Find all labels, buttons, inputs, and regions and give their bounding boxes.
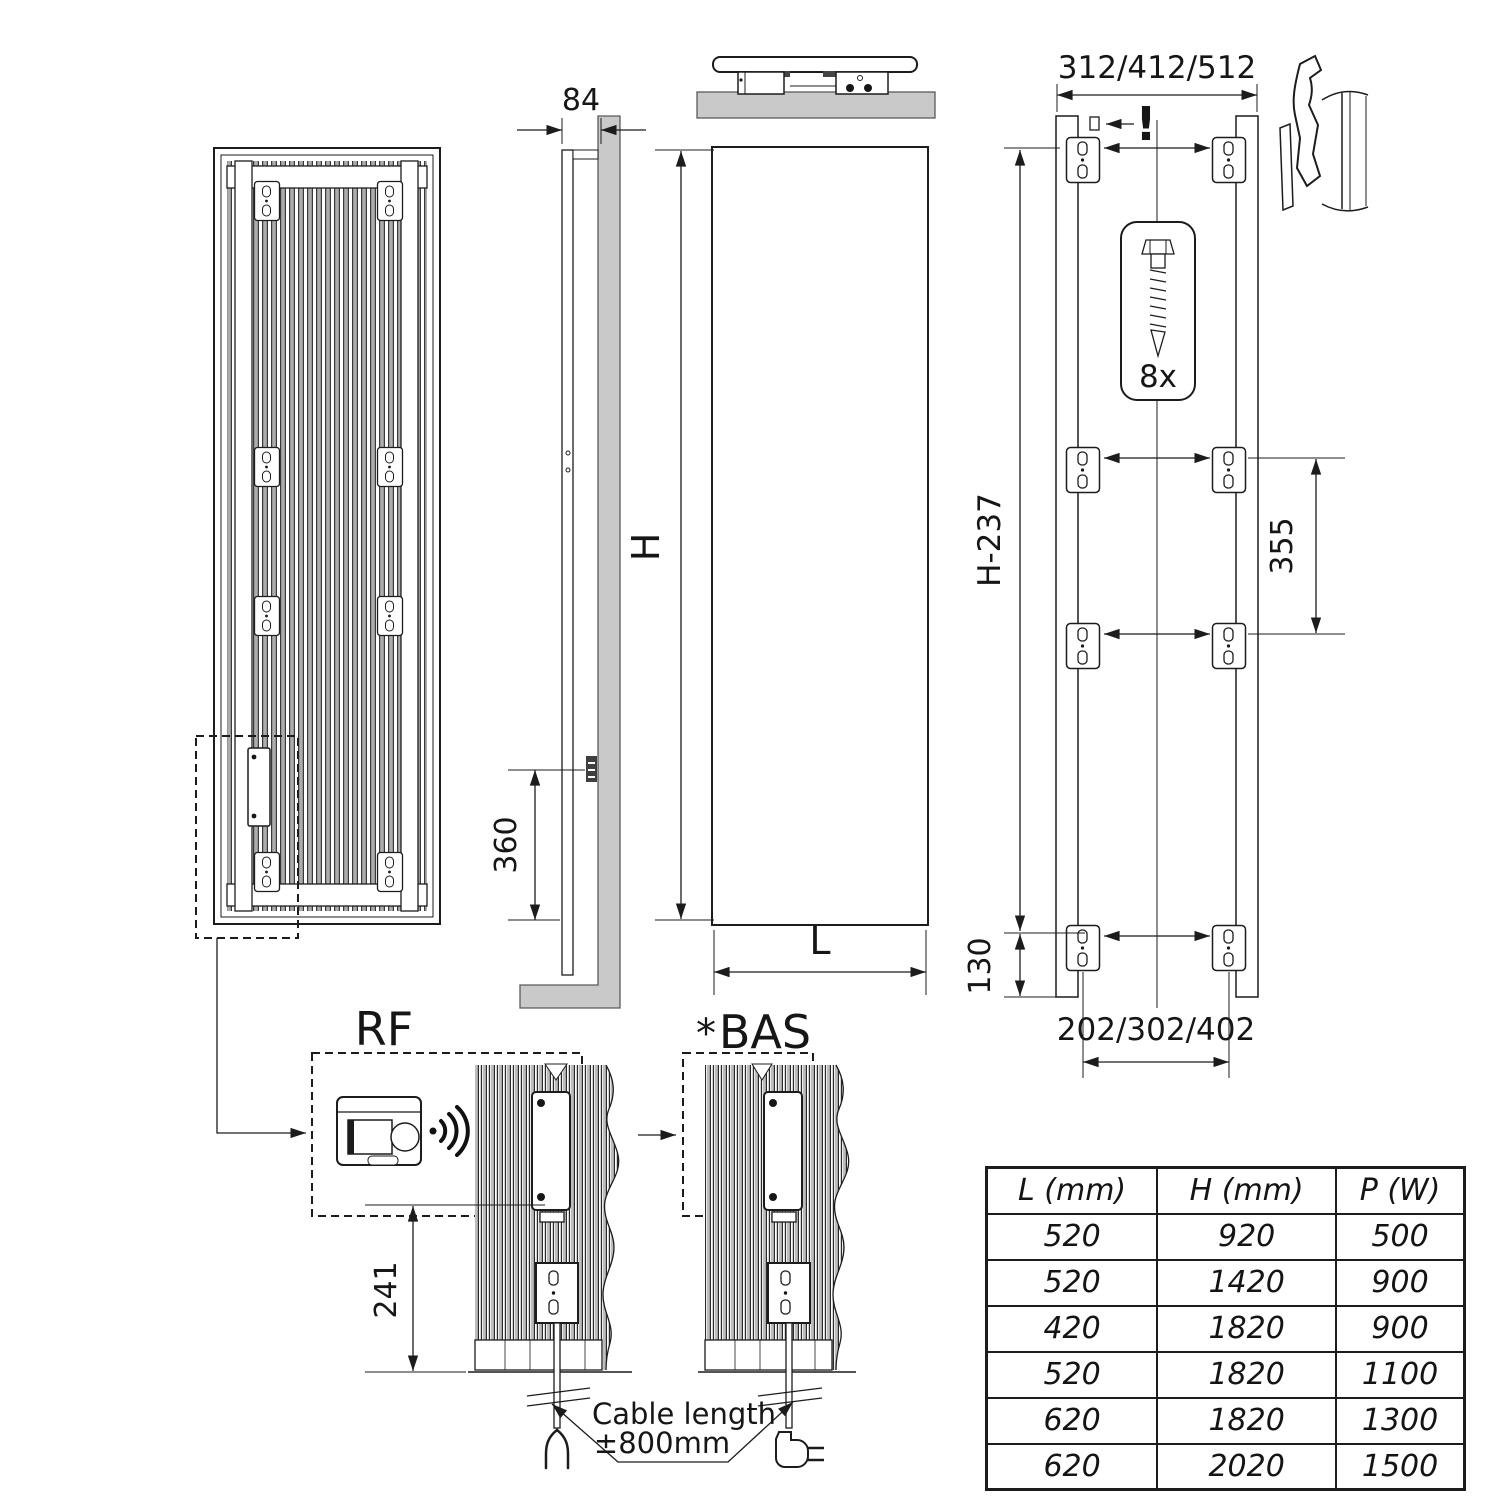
radiator-side-panel <box>562 150 573 975</box>
callout-leader-line <box>217 938 306 1133</box>
wall-bracket-side-detail <box>1280 56 1368 211</box>
mounting-bracket <box>1067 138 1100 183</box>
col-header-P: P (W) <box>1336 1168 1464 1214</box>
power-cable <box>554 1323 560 1428</box>
heater-control-module <box>532 1092 570 1210</box>
cell-L: 620 <box>987 1444 1158 1490</box>
cable-note-line2: ±800mm <box>594 1426 730 1460</box>
rail-right <box>1236 116 1258 997</box>
top-bracket-side <box>573 150 598 159</box>
cell-L: 520 <box>987 1260 1158 1306</box>
warning-mark: ! <box>1136 97 1157 151</box>
col-header-L: L (mm) <box>987 1168 1158 1214</box>
spec-row: 520 920 500 <box>987 1214 1465 1260</box>
module-screw <box>537 1099 545 1107</box>
cell-P: 900 <box>1336 1260 1464 1306</box>
dim-label-360: 360 <box>489 816 524 873</box>
bare-wire-end <box>546 1430 568 1468</box>
cell-H: 1820 <box>1157 1306 1336 1352</box>
col-header-H: H (mm) <box>1157 1168 1336 1214</box>
dim-label-H: H <box>624 533 668 562</box>
power-cable <box>786 1323 792 1428</box>
cell-H: 1820 <box>1157 1352 1336 1398</box>
front-view: H L <box>624 57 935 995</box>
alignment-tab <box>1090 117 1099 130</box>
cell-P: 1100 <box>1336 1352 1464 1398</box>
dim-label-H237: H-237 <box>972 493 1008 587</box>
module-screw <box>252 755 257 760</box>
mounting-bracket <box>378 182 403 221</box>
dim-130: 130 <box>963 934 1062 997</box>
spec-row: 520 1820 1100 <box>987 1352 1465 1398</box>
spec-row: 420 1820 900 <box>987 1306 1465 1352</box>
dim-depth-84: 84 <box>517 83 646 144</box>
cell-P: 900 <box>1336 1306 1464 1352</box>
spec-table-header-row: L (mm) H (mm) P (W) <box>987 1168 1465 1214</box>
rf-label: RF <box>355 1002 413 1056</box>
control-module <box>248 748 270 826</box>
plug-end <box>776 1432 824 1467</box>
rail-left <box>1056 116 1078 997</box>
spec-row: 520 1420 900 <box>987 1260 1465 1306</box>
mounting-bracket <box>255 853 280 892</box>
spec-row: 620 2020 1500 <box>987 1444 1465 1490</box>
cell-H: 1820 <box>1157 1398 1336 1444</box>
cable-length-note: Cable length ±800mm <box>552 1397 793 1462</box>
spec-table: L (mm) H (mm) P (W) 520 920 500 520 1420… <box>985 1166 1466 1491</box>
cell-H: 1420 <box>1157 1260 1336 1306</box>
heater-control-module <box>764 1092 802 1210</box>
dim-height-H: H <box>624 150 714 920</box>
mounting-bracket <box>1213 138 1246 183</box>
spec-row: 620 1820 1300 <box>987 1398 1465 1444</box>
bracket-top-view <box>836 72 888 94</box>
dim-label-top-width: 312/412/512 <box>1058 50 1256 86</box>
screw-badge: 8x <box>1121 222 1195 400</box>
wall-plate <box>1280 124 1293 210</box>
thermostat-display <box>348 1120 392 1154</box>
side-view: 84 360 <box>489 83 646 1008</box>
mounting-bracket <box>1213 926 1246 971</box>
bas-label: BAS <box>719 1005 811 1059</box>
cell-L: 520 <box>987 1352 1158 1398</box>
panel-outline <box>712 147 928 925</box>
screw-count-label: 8x <box>1139 359 1177 395</box>
cell-H: 2020 <box>1157 1444 1336 1490</box>
wall-bar <box>697 92 935 118</box>
dim-label-L: L <box>809 919 830 963</box>
remote-thermostat <box>337 1097 421 1165</box>
mounting-bracket <box>1067 624 1100 669</box>
dim-bottom-width: 202/302/402 <box>1057 972 1255 1078</box>
dim-label-241: 241 <box>369 1261 404 1318</box>
panel-top-profile <box>713 57 917 72</box>
mounting-bracket <box>1213 448 1246 493</box>
dim-width-L: L <box>714 919 926 995</box>
module-screw <box>769 1099 777 1107</box>
module-screw <box>252 814 257 819</box>
mounting-bracket <box>378 448 403 487</box>
cell-P: 1300 <box>1336 1398 1464 1444</box>
rf-detail: RF <box>312 1002 634 1468</box>
cell-P: 500 <box>1336 1214 1464 1260</box>
dim-355: 355 <box>1248 458 1345 634</box>
mounting-bracket <box>378 853 403 892</box>
dim-label-130: 130 <box>963 937 998 994</box>
module-screw <box>769 1193 777 1201</box>
thermostat-dial <box>391 1123 419 1151</box>
bas-star: * <box>696 1011 716 1057</box>
cell-L: 620 <box>987 1398 1158 1444</box>
dim-label-84: 84 <box>562 83 600 118</box>
cell-H: 920 <box>1157 1214 1336 1260</box>
wireless-signal-icon <box>430 1107 468 1155</box>
dim-label-bottom-width: 202/302/402 <box>1057 1012 1255 1048</box>
mounting-bracket <box>1067 448 1100 493</box>
mounting-bracket <box>1213 624 1246 669</box>
cell-L: 520 <box>987 1214 1158 1260</box>
installation-diagram: 84 360 <box>0 0 1500 1500</box>
cell-P: 1500 <box>1336 1444 1464 1490</box>
dim-label-355: 355 <box>1265 517 1300 574</box>
top-plan-view <box>697 57 935 118</box>
tube-right <box>401 161 418 911</box>
mounting-bracket <box>378 597 403 636</box>
mounting-bracket <box>1067 926 1100 971</box>
module-screw <box>537 1193 545 1201</box>
mounting-bracket <box>255 182 280 221</box>
hook-bracket <box>1294 56 1321 186</box>
mounting-bracket <box>255 597 280 636</box>
back-view <box>196 148 440 1133</box>
mounting-layout: 312/412/512 ! <box>963 50 1368 1078</box>
mounting-bracket <box>255 448 280 487</box>
cell-L: 420 <box>987 1306 1158 1352</box>
